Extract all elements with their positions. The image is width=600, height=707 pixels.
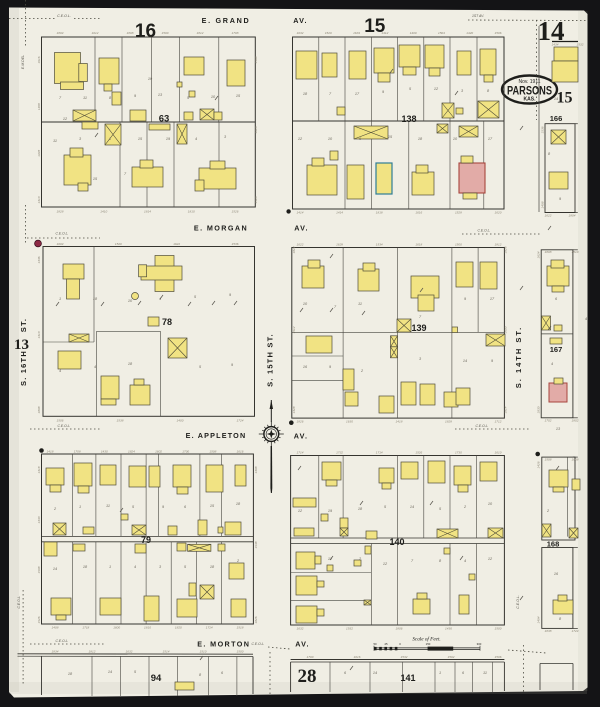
svg-text:1430: 1430 [37, 516, 41, 523]
svg-text:1500: 1500 [237, 650, 244, 654]
svg-text:78: 78 [162, 317, 172, 327]
svg-text:1808: 1808 [127, 31, 134, 35]
svg-text:1812: 1812 [89, 650, 96, 654]
svg-text:AV.: AV. [294, 224, 308, 233]
svg-text:14: 14 [108, 670, 112, 674]
svg-text:28: 28 [298, 666, 317, 687]
svg-text:1702: 1702 [545, 419, 552, 423]
svg-text:1500: 1500 [162, 31, 169, 35]
svg-text:16: 16 [135, 21, 156, 42]
svg-text:1526: 1526 [37, 616, 41, 623]
svg-text:1610: 1610 [254, 126, 258, 133]
svg-text:1510: 1510 [572, 250, 579, 254]
svg-text:1428: 1428 [37, 150, 41, 157]
svg-text:4: 4 [551, 362, 553, 366]
svg-text:1838: 1838 [545, 629, 552, 633]
svg-text:140: 140 [389, 537, 404, 547]
svg-text:14: 14 [554, 97, 558, 101]
svg-text:1: 1 [59, 297, 61, 301]
svg-text:1812: 1812 [197, 31, 204, 35]
svg-text:1400: 1400 [177, 419, 184, 423]
svg-text:1724: 1724 [572, 629, 579, 633]
svg-text:1612: 1612 [92, 31, 99, 35]
svg-text:1616: 1616 [37, 56, 41, 63]
svg-text:1826: 1826 [297, 420, 304, 424]
svg-text:C.E.O.L.: C.E.O.L. [516, 595, 520, 609]
svg-text:1824: 1824 [128, 450, 135, 454]
svg-text:168: 168 [547, 540, 560, 549]
svg-text:AV.: AV. [294, 432, 308, 441]
svg-text:1814: 1814 [504, 406, 508, 413]
svg-text:C.E.O.L.: C.E.O.L. [251, 642, 264, 646]
svg-text:1810: 1810 [144, 626, 151, 630]
svg-text:1616: 1616 [237, 450, 244, 454]
svg-text:1436: 1436 [445, 627, 452, 631]
svg-text:4: 4 [59, 369, 61, 373]
svg-text:166: 166 [550, 114, 563, 123]
svg-text:1536: 1536 [232, 242, 239, 246]
svg-text:1: 1 [109, 137, 111, 141]
svg-text:1500: 1500 [495, 627, 502, 631]
svg-text:25: 25 [384, 642, 388, 646]
svg-text:11: 11 [83, 96, 87, 100]
svg-text:150: 150 [426, 642, 431, 646]
svg-text:E. MORTON: E. MORTON [197, 640, 250, 649]
svg-text:1814: 1814 [144, 210, 151, 214]
svg-text:E.M.DEL: E.M.DEL [21, 55, 25, 69]
svg-text:14: 14 [463, 359, 467, 363]
svg-text:1600: 1600 [504, 326, 508, 333]
svg-text:1: 1 [79, 505, 81, 509]
svg-text:1508: 1508 [209, 450, 216, 454]
svg-text:1632: 1632 [297, 627, 304, 631]
svg-text:1434: 1434 [552, 43, 559, 47]
svg-text:1808: 1808 [37, 406, 41, 413]
svg-text:1714: 1714 [297, 451, 304, 455]
svg-text:1508: 1508 [37, 566, 41, 573]
svg-text:1828: 1828 [57, 210, 64, 214]
svg-text:1510: 1510 [200, 650, 207, 654]
svg-text:1826: 1826 [254, 616, 258, 623]
svg-text:167: 167 [550, 345, 563, 354]
svg-text:1634: 1634 [353, 31, 360, 35]
svg-text:1408: 1408 [541, 201, 545, 208]
svg-text:4: 4 [134, 565, 136, 569]
svg-text:1724: 1724 [237, 419, 244, 423]
svg-text:1414: 1414 [336, 211, 343, 215]
svg-text:1602: 1602 [155, 450, 162, 454]
svg-text:1708: 1708 [232, 31, 239, 35]
svg-text:1630: 1630 [346, 420, 353, 424]
svg-text:1730: 1730 [455, 451, 462, 455]
svg-text:C.E.O.L.: C.E.O.L. [55, 232, 68, 236]
svg-text:1810: 1810 [188, 210, 195, 214]
svg-text:300: 300 [477, 642, 482, 646]
svg-text:1608: 1608 [572, 458, 579, 462]
svg-text:1700: 1700 [307, 655, 314, 659]
svg-text:138: 138 [401, 114, 416, 124]
svg-text:11: 11 [106, 504, 110, 508]
svg-text:1714: 1714 [376, 451, 383, 455]
svg-text:1426: 1426 [537, 461, 541, 468]
svg-text:1410: 1410 [100, 210, 107, 214]
svg-text:1508: 1508 [254, 56, 258, 63]
svg-text:1538: 1538 [117, 419, 124, 423]
svg-text:1532: 1532 [401, 655, 408, 659]
svg-text:1428: 1428 [292, 406, 296, 413]
svg-text:14: 14 [53, 567, 57, 571]
svg-text:1514: 1514 [163, 650, 170, 654]
svg-text:1418: 1418 [47, 450, 54, 454]
svg-text:1622: 1622 [297, 243, 304, 247]
svg-text:1632: 1632 [126, 650, 133, 654]
svg-text:1824: 1824 [292, 246, 296, 253]
svg-text:94: 94 [151, 673, 162, 684]
svg-text:15: 15 [557, 90, 573, 107]
svg-text:1: 1 [439, 671, 441, 675]
svg-text:C.E.O.L.: C.E.O.L. [57, 424, 70, 428]
svg-text:C.E.O.L.: C.E.O.L. [475, 424, 488, 428]
svg-text:63: 63 [159, 114, 170, 125]
svg-text:4: 4 [94, 365, 96, 369]
svg-text:1826: 1826 [504, 246, 508, 253]
svg-text:1528: 1528 [455, 211, 462, 215]
svg-text:139: 139 [411, 323, 426, 333]
svg-text:1526: 1526 [232, 210, 239, 214]
svg-text:50: 50 [373, 642, 377, 646]
svg-text:141: 141 [400, 673, 415, 683]
svg-text:1500: 1500 [455, 243, 462, 247]
svg-text:1420: 1420 [466, 31, 473, 35]
svg-text:1520: 1520 [115, 242, 122, 246]
svg-text:11: 11 [483, 671, 487, 675]
svg-text:1712: 1712 [495, 420, 502, 424]
svg-text:1418: 1418 [37, 466, 41, 473]
svg-text:4: 4 [195, 137, 197, 141]
svg-text:4: 4 [464, 559, 466, 563]
svg-text:79: 79 [141, 535, 151, 545]
svg-text:1830: 1830 [537, 406, 541, 413]
svg-text:1412: 1412 [381, 31, 388, 35]
svg-text:1834: 1834 [52, 650, 59, 654]
svg-text:KAS.: KAS. [524, 97, 537, 103]
svg-text:1708: 1708 [74, 450, 81, 454]
svg-text:Nov. 1911: Nov. 1911 [518, 79, 540, 85]
svg-text:1504: 1504 [438, 31, 445, 35]
svg-text:11: 11 [358, 302, 362, 306]
svg-text:1526: 1526 [415, 451, 422, 455]
svg-text:1538: 1538 [254, 541, 258, 548]
svg-text:C.E.O.L.: C.E.O.L. [477, 229, 490, 233]
svg-text:1804: 1804 [569, 214, 576, 218]
svg-text:1520: 1520 [325, 31, 332, 35]
svg-text:1610: 1610 [495, 451, 502, 455]
svg-text:1506: 1506 [495, 31, 502, 35]
svg-text:1508: 1508 [545, 458, 552, 462]
svg-text:1410: 1410 [37, 196, 41, 203]
svg-text:1812: 1812 [495, 243, 502, 247]
svg-text:1828: 1828 [445, 420, 452, 424]
svg-text:1408: 1408 [254, 466, 258, 473]
svg-text:1404: 1404 [537, 616, 541, 623]
svg-text:E. APPLETON: E. APPLETON [186, 431, 247, 440]
svg-text:1620: 1620 [495, 211, 502, 215]
svg-text:1520: 1520 [254, 196, 258, 203]
svg-text:1802: 1802 [572, 419, 579, 423]
svg-text:E. GRAND: E. GRAND [202, 16, 251, 25]
svg-text:1600: 1600 [113, 626, 120, 630]
svg-text:E. MORGAN: E. MORGAN [194, 224, 248, 233]
svg-text:1532: 1532 [346, 627, 353, 631]
svg-text:1534: 1534 [376, 243, 383, 247]
svg-text:1818: 1818 [376, 211, 383, 215]
svg-text:1700: 1700 [182, 450, 189, 454]
svg-text:11: 11 [53, 139, 57, 143]
svg-text:1622: 1622 [173, 242, 180, 246]
svg-text:1408: 1408 [52, 626, 59, 630]
svg-text:1804: 1804 [57, 31, 64, 35]
svg-text:1618: 1618 [415, 243, 422, 247]
svg-text:14: 14 [410, 505, 414, 509]
svg-text:1806: 1806 [396, 627, 403, 631]
svg-text:1408: 1408 [37, 103, 41, 110]
svg-text:1532: 1532 [577, 43, 584, 47]
svg-text:4: 4 [585, 317, 587, 321]
svg-text:1518: 1518 [237, 626, 244, 630]
svg-text:1506: 1506 [57, 419, 64, 423]
svg-text:1820: 1820 [175, 626, 182, 630]
svg-text:1718: 1718 [82, 626, 89, 630]
svg-text:1628: 1628 [336, 243, 343, 247]
svg-text:1714: 1714 [206, 626, 213, 630]
svg-text:C.E.O.L.: C.E.O.L. [57, 14, 71, 18]
svg-text:1536: 1536 [541, 126, 545, 133]
svg-text:S. 16TH: S. 16TH [19, 350, 28, 386]
svg-text:1624: 1624 [537, 251, 541, 258]
svg-text:1: 1 [109, 565, 111, 569]
svg-text:1414: 1414 [297, 211, 304, 215]
svg-text:1ST AV.: 1ST AV. [472, 14, 484, 18]
svg-text:1410: 1410 [37, 331, 41, 338]
svg-text:ST.: ST. [19, 318, 28, 332]
svg-text:1732: 1732 [336, 451, 343, 455]
svg-text:14: 14 [373, 671, 377, 675]
svg-text:1808: 1808 [545, 250, 552, 254]
svg-text:C.E.O.L.: C.E.O.L. [55, 639, 68, 643]
svg-text:1400: 1400 [410, 31, 417, 35]
svg-text:1418: 1418 [396, 420, 403, 424]
svg-text:1632: 1632 [297, 31, 304, 35]
svg-text:1616: 1616 [415, 211, 422, 215]
svg-text:1430: 1430 [101, 450, 108, 454]
svg-text:AV.: AV. [293, 16, 307, 25]
svg-text:1622: 1622 [545, 214, 552, 218]
svg-text:S. 15TH ST.: S. 15TH ST. [266, 333, 275, 387]
svg-text:1502: 1502 [448, 655, 455, 659]
svg-text:AV.: AV. [295, 640, 309, 649]
svg-text:1506: 1506 [495, 655, 502, 659]
svg-text:1436: 1436 [37, 256, 41, 263]
svg-text:1616: 1616 [354, 655, 361, 659]
svg-text:13: 13 [14, 337, 29, 353]
svg-text:S. 14TH ST.: S. 14TH ST. [514, 326, 523, 388]
svg-text:1512: 1512 [292, 326, 296, 333]
svg-text:1604: 1604 [57, 242, 64, 246]
svg-text:C.E.O.L.: C.E.O.L. [17, 595, 21, 608]
